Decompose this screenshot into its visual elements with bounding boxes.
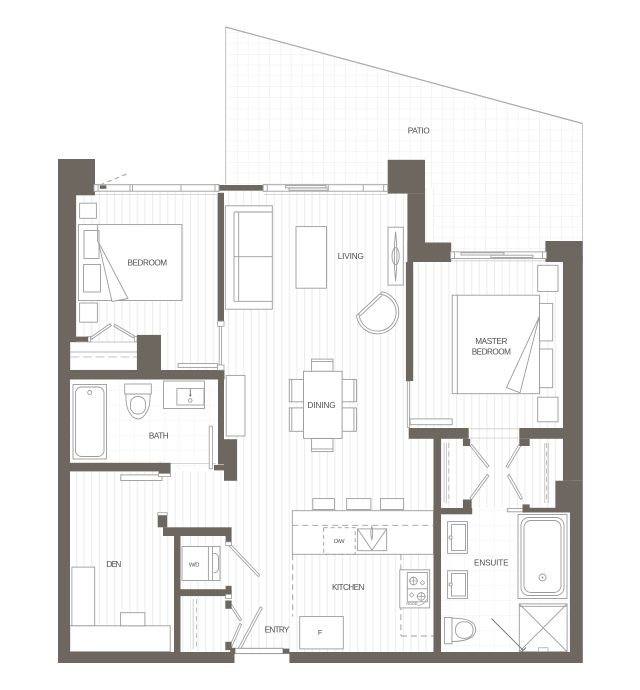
svg-text:F: F (318, 630, 322, 637)
svg-text:HOOD: HOOD (407, 602, 418, 606)
svg-text:D/W: D/W (334, 539, 345, 545)
svg-text:MASTER: MASTER (475, 337, 509, 346)
svg-text:DINING: DINING (308, 401, 338, 410)
svg-text:KITCHEN: KITCHEN (332, 583, 366, 592)
svg-text:W/D: W/D (189, 562, 200, 568)
svg-text:ENSUITE: ENSUITE (474, 558, 510, 567)
svg-text:BEDROOM: BEDROOM (128, 259, 169, 268)
svg-text:PATIO: PATIO (408, 127, 431, 136)
svg-text:BEDROOM: BEDROOM (472, 347, 513, 356)
svg-text:LIVING: LIVING (338, 252, 366, 261)
svg-text:ENTRY: ENTRY (265, 626, 291, 635)
svg-text:BATH: BATH (149, 431, 170, 440)
svg-text:DEN: DEN (106, 560, 122, 569)
